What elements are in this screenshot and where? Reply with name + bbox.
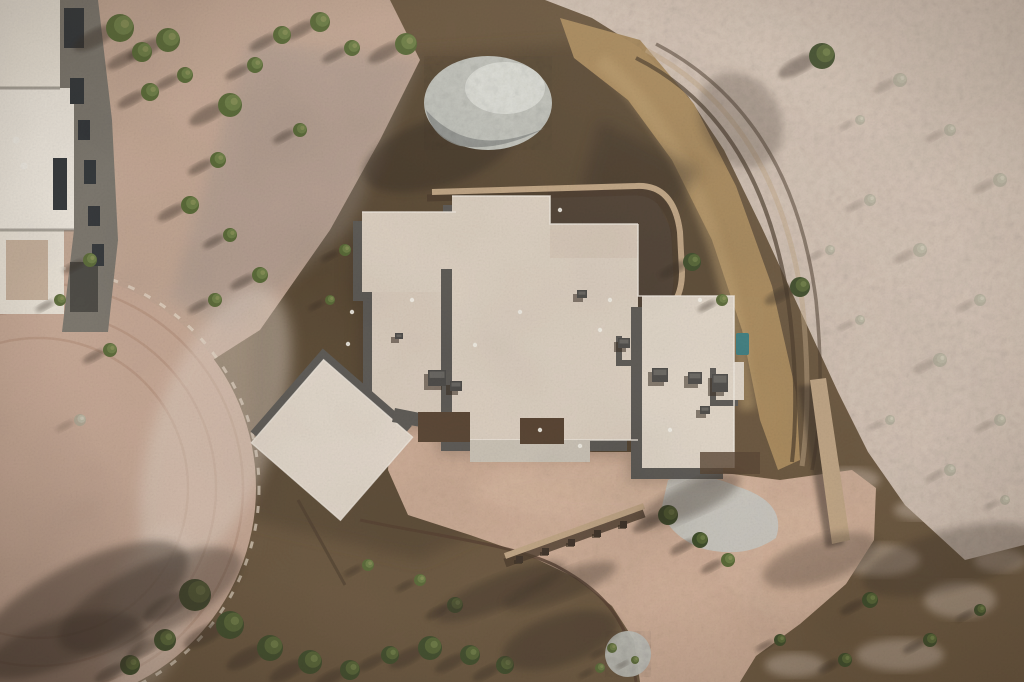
aerial-photo xyxy=(0,0,1024,682)
vignette xyxy=(0,0,1024,682)
